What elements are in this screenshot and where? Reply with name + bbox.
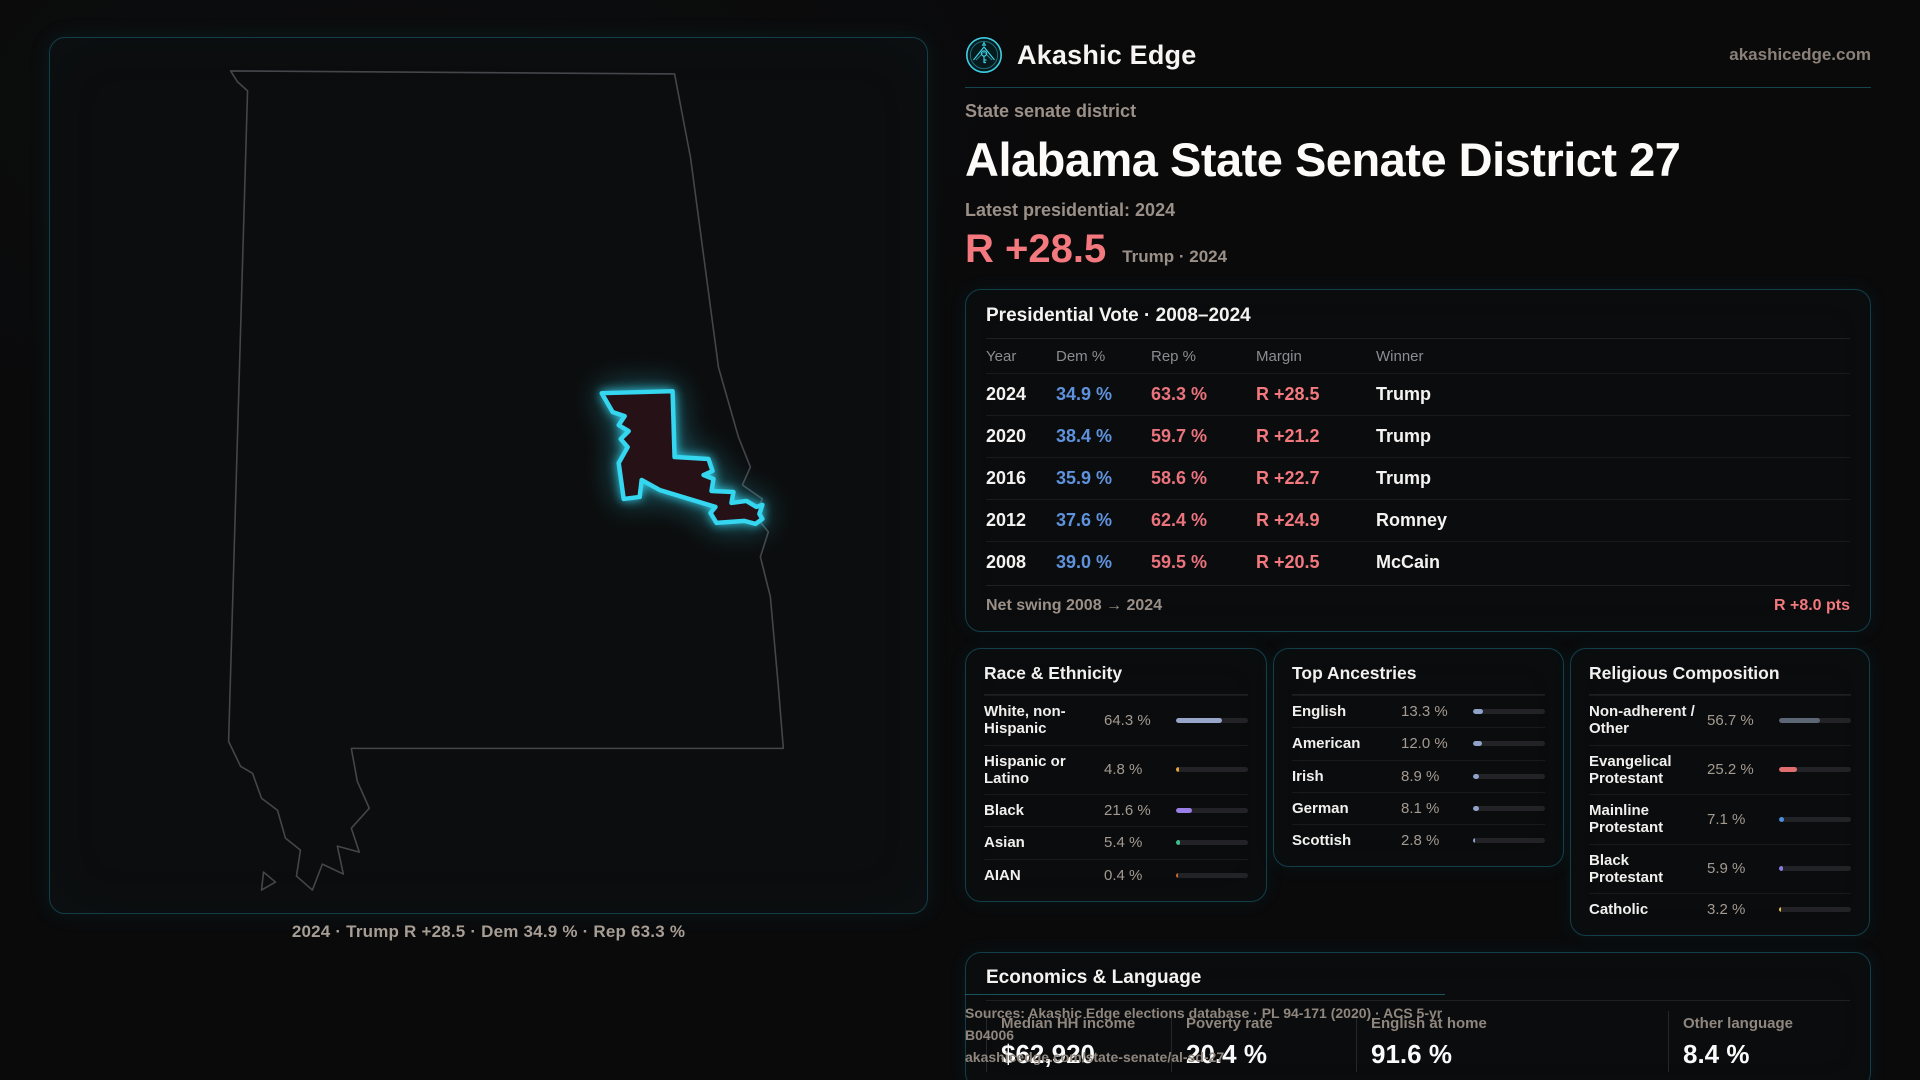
margin-headline: R +28.5 Trump · 2024 [965,227,1871,272]
stat-bar-fill [1779,907,1781,912]
stat-label: American [1292,735,1391,752]
stat-bar-fill [1473,806,1479,811]
table-body: 202434.9 %63.3 %R +28.5Trump202038.4 %59… [986,373,1850,583]
net-swing-value: R +8.0 pts [1774,597,1850,615]
map-caption: 2024 · Trump R +28.5 · Dem 34.9 % · Rep … [49,922,928,942]
alabama-map [50,38,927,913]
stat-bar-fill [1176,767,1179,772]
cell-rep: 59.5 % [1151,552,1256,573]
stat-label: Black [984,802,1094,819]
cell-winner: Trump [1376,426,1850,447]
cell-year: 2012 [986,510,1056,531]
cell-margin: R +28.5 [1256,384,1376,405]
presidential-vote-card: Presidential Vote · 2008–2024 YearDem %R… [965,289,1871,632]
stat-bar [1176,767,1248,772]
economics-card-title: Economics & Language [986,967,1850,989]
winged-key-emblem-icon [965,36,1003,74]
stat-value: 64.3 % [1104,712,1166,729]
presidential-card-title: Presidential Vote · 2008–2024 [986,305,1850,327]
stat-label: Evangelical Protestant [1589,753,1697,788]
district-shape [602,391,763,524]
cell-dem: 38.4 % [1056,426,1151,447]
stat-value: 21.6 % [1104,802,1166,819]
economic-stat-label: Other language [1683,1015,1850,1032]
stat-row: Non-adherent / Other56.7 % [1589,695,1851,745]
detail-column: Akashic Edge akashicedge.com State senat… [965,28,1871,1080]
stat-label: Mainline Protestant [1589,802,1697,837]
column-header: Year [986,348,1056,365]
panel-title: Race & Ethnicity [984,663,1248,684]
stat-label: Irish [1292,768,1391,785]
net-swing-row: Net swing 2008 → 2024 R +8.0 pts [986,585,1850,619]
cell-rep: 59.7 % [1151,426,1256,447]
stat-value: 12.0 % [1401,735,1463,752]
stat-row: Black21.6 % [984,794,1248,826]
stat-row: German8.1 % [1292,792,1545,824]
stat-value: 13.3 % [1401,703,1463,720]
stat-row: English13.3 % [1292,695,1545,727]
district-map-panel [49,37,928,914]
table-row: 201635.9 %58.6 %R +22.7Trump [986,457,1850,499]
stat-bar-fill [1176,840,1180,845]
cell-dem: 34.9 % [1056,384,1151,405]
stat-bar [1176,718,1248,723]
cell-year: 2016 [986,468,1056,489]
stat-bar [1779,907,1851,912]
cell-year: 2024 [986,384,1056,405]
stat-bar [1779,718,1851,723]
table-header-row: YearDem %Rep %MarginWinner [986,339,1850,373]
stat-value: 3.2 % [1707,901,1769,918]
stat-row: Scottish2.8 % [1292,824,1545,856]
brand-name: Akashic Edge [1017,40,1196,71]
net-swing-label: Net swing 2008 → 2024 [986,597,1162,615]
stat-row: White, non-Hispanic64.3 % [984,695,1248,745]
cell-margin: R +24.9 [1256,510,1376,531]
column-header: Dem % [1056,348,1151,365]
page-title: Alabama State Senate District 27 [965,132,1871,187]
cell-rep: 63.3 % [1151,384,1256,405]
stat-row: Mainline Protestant7.1 % [1589,794,1851,844]
cell-year: 2020 [986,426,1056,447]
stat-value: 7.1 % [1707,811,1769,828]
latest-presidential-label: Latest presidential: 2024 [965,200,1871,221]
stat-bar [1473,838,1545,843]
stat-label: Black Protestant [1589,852,1697,887]
stat-value: 0.4 % [1104,867,1166,884]
stat-bar [1473,806,1545,811]
stat-bar-fill [1473,838,1475,843]
stat-label: Scottish [1292,832,1391,849]
stat-value: 25.2 % [1707,761,1769,778]
stat-label: English [1292,703,1391,720]
stat-label: AIAN [984,867,1094,884]
stat-bar [1779,817,1851,822]
stat-label: German [1292,800,1391,817]
table-row: 202038.4 %59.7 %R +21.2Trump [986,415,1850,457]
stat-value: 56.7 % [1707,712,1769,729]
cell-margin: R +22.7 [1256,468,1376,489]
margin-value: R +28.5 [965,227,1106,272]
table-row: 201237.6 %62.4 %R +24.9Romney [986,499,1850,541]
stat-row: Irish8.9 % [1292,760,1545,792]
stat-bar [1473,741,1545,746]
stat-value: 5.4 % [1104,834,1166,851]
stat-bar-fill [1176,718,1222,723]
stat-bar [1473,774,1545,779]
kicker-label: State senate district [965,101,1871,122]
stat-value: 5.9 % [1707,860,1769,877]
stat-row: Hispanic or Latino4.8 % [984,745,1248,795]
panel-race-ethnicity: Race & EthnicityWhite, non-Hispanic64.3 … [965,648,1267,902]
cell-winner: Romney [1376,510,1850,531]
sources-line: Sources: Akashic Edge elections database… [965,1005,1442,1043]
sources-url-link[interactable]: akashicedge.com/state-senate/al-sd-27 [965,1046,1445,1068]
brand-domain-link[interactable]: akashicedge.com [1729,45,1871,65]
panel-title: Top Ancestries [1292,663,1545,684]
stat-row: Catholic3.2 % [1589,893,1851,925]
stat-bar-fill [1176,808,1192,813]
table-row: 200839.0 %59.5 %R +20.5McCain [986,541,1850,583]
column-header: Winner [1376,348,1850,365]
margin-context: Trump · 2024 [1122,247,1227,267]
stat-bar [1176,808,1248,813]
panel-top-ancestries: Top AncestriesEnglish13.3 %American12.0 … [1273,648,1564,867]
column-header: Rep % [1151,348,1256,365]
economic-stat-value: 8.4 % [1683,1039,1850,1070]
stat-row: Black Protestant5.9 % [1589,844,1851,894]
stat-label: Hispanic or Latino [984,753,1094,788]
stat-label: Catholic [1589,901,1697,918]
stat-value: 4.8 % [1104,761,1166,778]
stat-bar-fill [1779,866,1783,871]
stat-bar [1176,840,1248,845]
stat-value: 8.9 % [1401,768,1463,785]
stat-bar-fill [1473,741,1482,746]
stat-row: AIAN0.4 % [984,859,1248,891]
cell-dem: 37.6 % [1056,510,1151,531]
cell-rep: 62.4 % [1151,510,1256,531]
table-row: 202434.9 %63.3 %R +28.5Trump [986,373,1850,415]
mobile-delta-detail [262,872,276,890]
stat-bar-fill [1779,718,1820,723]
cell-rep: 58.6 % [1151,468,1256,489]
stat-value: 8.1 % [1401,800,1463,817]
stat-label: Asian [984,834,1094,851]
stat-bar-fill [1779,767,1797,772]
panel-religious-composition: Religious CompositionNon-adherent / Othe… [1570,648,1870,936]
stat-bar [1176,873,1248,878]
cell-dem: 35.9 % [1056,468,1151,489]
stat-label: Non-adherent / Other [1589,703,1697,738]
stat-bar [1779,866,1851,871]
cell-year: 2008 [986,552,1056,573]
panel-title: Religious Composition [1589,663,1851,684]
cell-dem: 39.0 % [1056,552,1151,573]
dashboard: 2024 · Trump R +28.5 · Dem 34.9 % · Rep … [0,0,1920,1080]
cell-margin: R +21.2 [1256,426,1376,447]
stat-bar-fill [1473,774,1479,779]
cell-winner: Trump [1376,384,1850,405]
stat-bar-fill [1176,873,1178,878]
header: Akashic Edge akashicedge.com [965,28,1871,74]
cell-winner: McCain [1376,552,1850,573]
header-divider [965,87,1871,88]
economic-stat: Other language8.4 % [1668,1011,1850,1072]
column-header: Margin [1256,348,1376,365]
stat-label: White, non-Hispanic [984,703,1094,738]
stat-bar-fill [1779,817,1784,822]
stat-bar-fill [1473,709,1483,714]
stat-row: American12.0 % [1292,727,1545,759]
sources-footer: Sources: Akashic Edge elections database… [965,994,1445,1068]
cell-margin: R +20.5 [1256,552,1376,573]
stat-bar [1473,709,1545,714]
demographics-row: Race & EthnicityWhite, non-Hispanic64.3 … [965,648,1871,936]
stat-value: 2.8 % [1401,832,1463,849]
stat-bar [1779,767,1851,772]
stat-row: Evangelical Protestant25.2 % [1589,745,1851,795]
stat-row: Asian5.4 % [984,826,1248,858]
cell-winner: Trump [1376,468,1850,489]
